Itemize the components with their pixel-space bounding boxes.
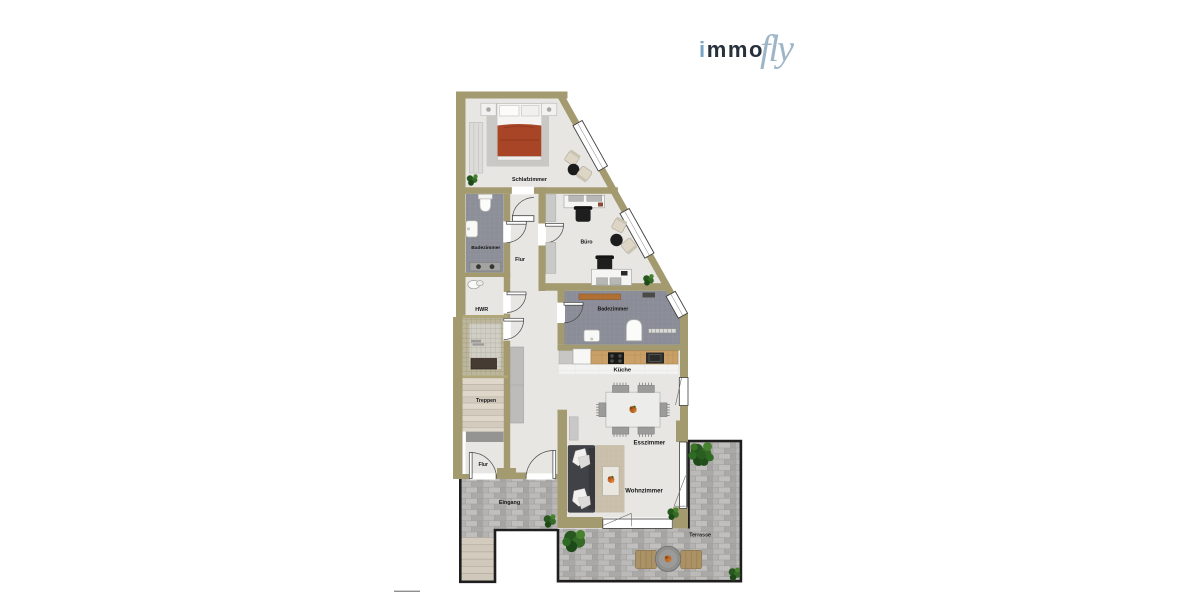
svg-text:Küche: Küche xyxy=(613,368,631,374)
svg-text:fly: fly xyxy=(760,28,794,70)
svg-text:Esszimmer: Esszimmer xyxy=(634,441,666,447)
svg-text:Schlafzimmer: Schlafzimmer xyxy=(512,177,548,183)
svg-text:Flur: Flur xyxy=(515,257,525,263)
svg-text:Eingang: Eingang xyxy=(499,500,520,506)
svg-text:Büro: Büro xyxy=(580,240,592,246)
svg-text:Badezimmer: Badezimmer xyxy=(471,245,500,251)
svg-text:Treppen: Treppen xyxy=(476,398,496,404)
svg-text:immo: immo xyxy=(699,37,764,62)
svg-text:Terrasse: Terrasse xyxy=(689,532,711,538)
svg-text:Badezimmer: Badezimmer xyxy=(597,307,628,313)
svg-text:Wohnzimmer: Wohnzimmer xyxy=(625,489,663,495)
svg-text:Flur: Flur xyxy=(478,462,487,468)
svg-text:HWR: HWR xyxy=(475,307,488,313)
